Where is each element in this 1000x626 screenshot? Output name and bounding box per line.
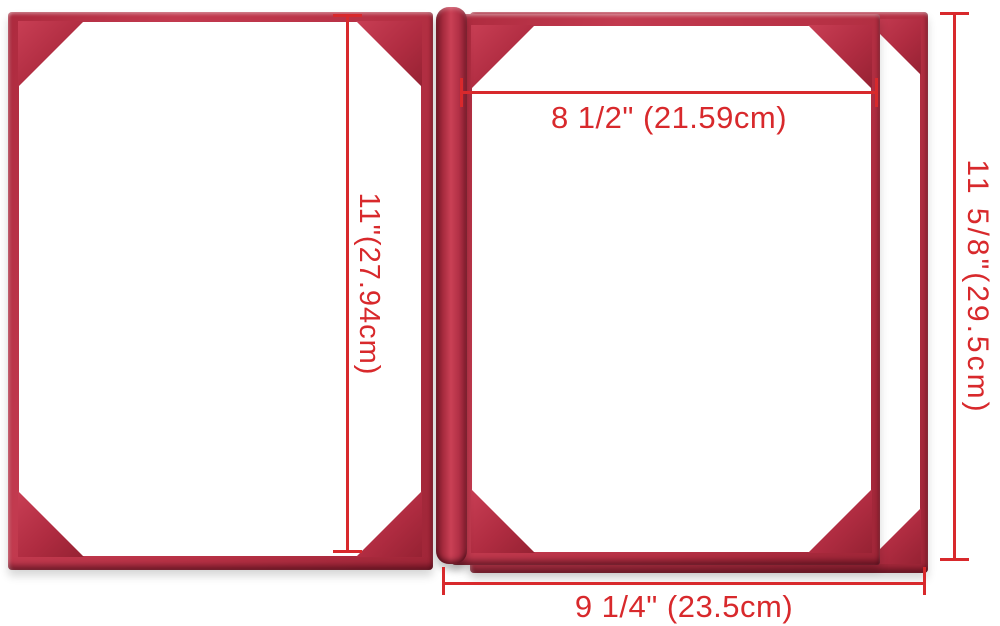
product-dimension-image: 8 1/2" (21.59cm) 11"(27.94cm) 11 5/8"(29… (0, 0, 1000, 626)
corner-pocket (18, 21, 84, 87)
dimension-left-height-label: 11"(27.94cm) (354, 192, 383, 375)
corner-pocket (808, 489, 872, 553)
dimension-bottom-width-label: 9 1/4" (23.5cm) (442, 591, 926, 624)
corner-pocket (18, 491, 84, 557)
dimension-line (346, 14, 349, 553)
dimension-line (460, 91, 878, 94)
dimension-line (953, 12, 956, 561)
corner-pocket (471, 489, 535, 553)
dimension-bottom-width: 9 1/4" (23.5cm) (442, 567, 926, 626)
dimension-line (442, 582, 926, 585)
dimension-top-width: 8 1/2" (21.59cm) (460, 78, 878, 140)
dimension-right-height: 11 5/8"(29.5cm) (940, 12, 1000, 561)
dimension-right-height-label: 11 5/8"(29.5cm) (962, 159, 992, 414)
dimension-top-width-label: 8 1/2" (21.59cm) (460, 102, 878, 135)
dimension-left-height: 11"(27.94cm) (333, 14, 395, 553)
